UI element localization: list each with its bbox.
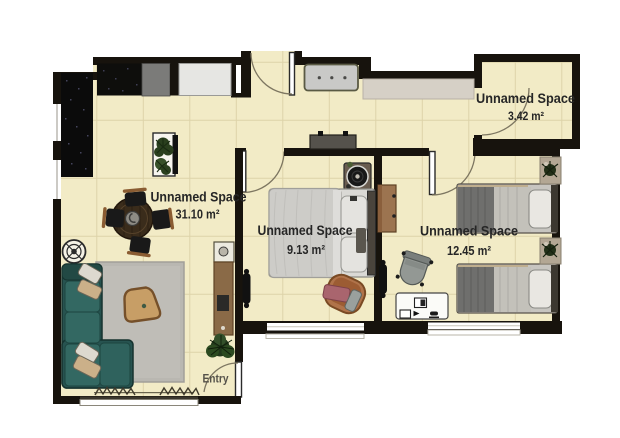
svg-text:Entry: Entry (203, 374, 230, 386)
svg-text:31.10 m²: 31.10 m² (176, 207, 221, 222)
svg-text:3.42 m²: 3.42 m² (508, 109, 544, 123)
svg-text:Unnamed Space: Unnamed Space (258, 222, 353, 238)
svg-text:Unnamed Space: Unnamed Space (476, 91, 575, 106)
svg-text:9.13 m²: 9.13 m² (287, 243, 325, 257)
svg-text:Unnamed Space: Unnamed Space (151, 188, 247, 204)
svg-text:12.45 m²: 12.45 m² (447, 244, 491, 258)
svg-text:Unnamed Space: Unnamed Space (420, 223, 518, 239)
